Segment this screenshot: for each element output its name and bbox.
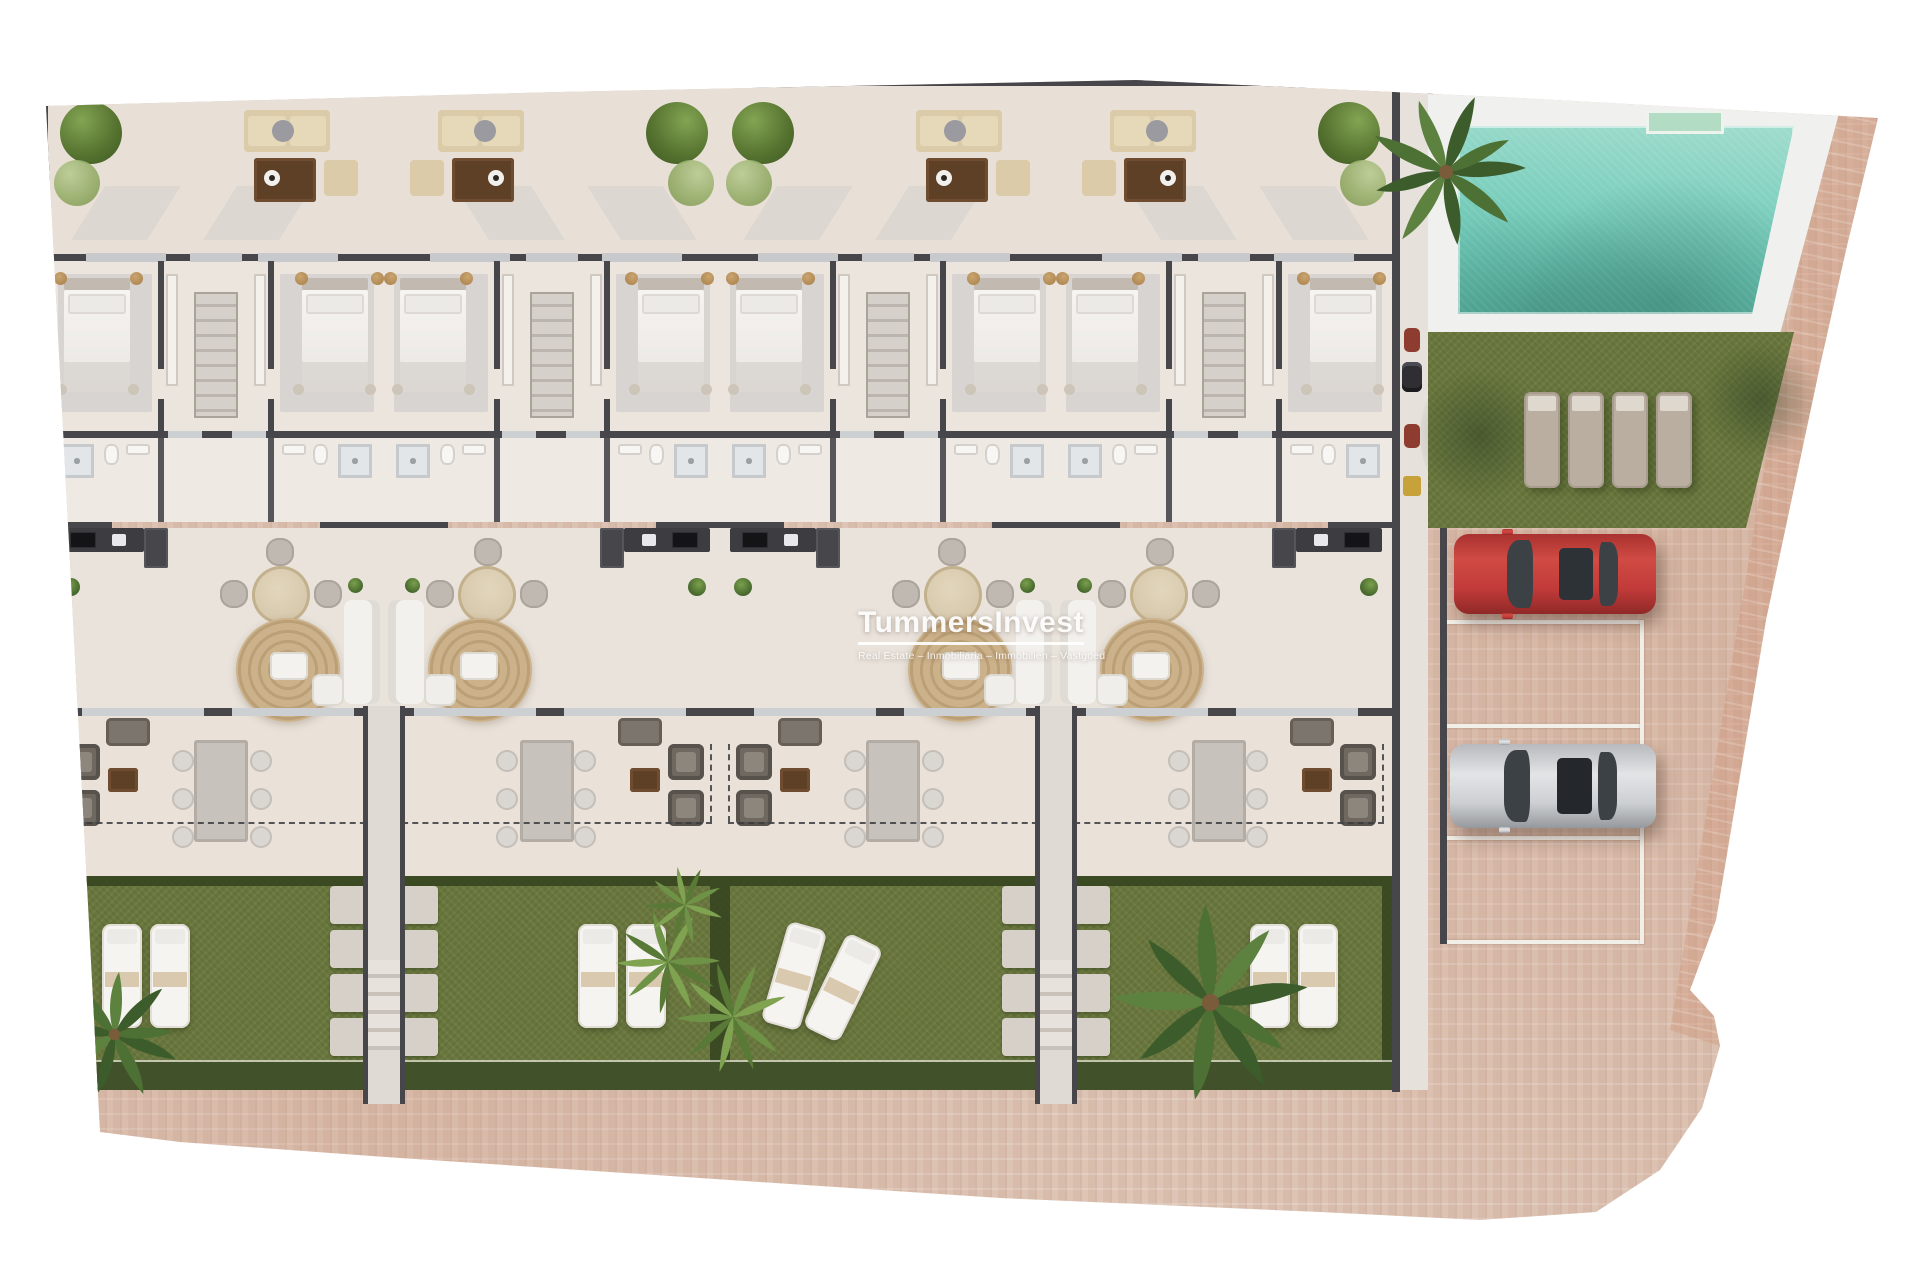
shower [1068, 444, 1102, 478]
wall [158, 438, 164, 522]
bed-headboard [638, 278, 704, 290]
path-steps [1040, 960, 1072, 1050]
bathroom-sink [126, 444, 150, 455]
window [1198, 253, 1250, 262]
dining-table [1130, 566, 1188, 624]
townhouse-unit-1 [48, 86, 384, 1090]
wall [1056, 522, 1120, 528]
lounge-armchair [668, 744, 704, 780]
sliding-door [1086, 708, 1208, 716]
staircase [194, 292, 238, 418]
dining-chair [474, 538, 502, 566]
red-car [1454, 534, 1656, 614]
fire-bowl [264, 170, 280, 186]
night-lamp [701, 272, 714, 285]
sofa-cushion [442, 116, 478, 146]
wall [1276, 399, 1282, 431]
wall [940, 438, 946, 522]
pouf [464, 384, 475, 395]
terrace-bush-light [668, 160, 714, 206]
entry-path [1035, 706, 1077, 1104]
outdoor-chair [1168, 826, 1190, 848]
toilet [776, 444, 791, 465]
staircase [1202, 292, 1246, 418]
scooter [1402, 362, 1422, 392]
night-lamp [1132, 272, 1145, 285]
parking-line [1447, 940, 1643, 944]
wall [268, 438, 274, 522]
doormat [1404, 424, 1420, 448]
coffee-table [270, 652, 308, 680]
dining-table [252, 566, 310, 624]
shape [1087, 876, 1342, 1132]
chaise [1096, 674, 1128, 706]
dining-chair [892, 580, 920, 608]
windshield [1504, 750, 1531, 822]
floor-plan-stage: TummersInvest Real Estate – Inmobiliaria… [0, 0, 1920, 1280]
sofa-cushion [1114, 116, 1150, 146]
toilet [104, 444, 119, 465]
coffee-table [452, 158, 514, 202]
night-lamp [295, 272, 308, 285]
outdoor-chair [172, 826, 194, 848]
plot-boundary-dashed [56, 744, 58, 822]
bed-pillows [978, 294, 1036, 314]
lounge-chair [618, 718, 662, 746]
pouf [365, 384, 376, 395]
parking-line [1447, 620, 1643, 624]
entry-path [363, 706, 405, 1104]
plot-boundary-dashed [728, 822, 1048, 824]
watermark-subtitle: Real Estate – Inmobiliaria – Immobilien … [858, 650, 1078, 662]
night-lamp [967, 272, 980, 285]
night-lamp [384, 272, 397, 285]
lounge-chair [106, 718, 150, 746]
pool-entry-steps [1646, 110, 1724, 134]
kitchen-sink [784, 534, 798, 546]
building-left-wall [42, 80, 50, 1092]
night-lamp [802, 272, 815, 285]
cooktop [1344, 532, 1370, 548]
outdoor-armchair [1082, 160, 1116, 196]
bed-headboard [64, 278, 130, 290]
sliding-window [602, 253, 682, 262]
pil [1660, 396, 1689, 411]
sliding-door [82, 708, 204, 716]
coffee-table [460, 652, 498, 680]
windshield [1507, 540, 1533, 609]
potted-plant [405, 578, 420, 593]
chaise [424, 674, 456, 706]
night-lamp [1056, 272, 1069, 285]
wall [720, 431, 1056, 438]
bathroom-sink [282, 444, 306, 455]
outdoor-armchair [324, 160, 358, 196]
sliding-door [754, 708, 876, 716]
plot-boundary-dashed [392, 822, 712, 824]
kitchen-sink [642, 534, 656, 546]
wardrobe [926, 274, 938, 386]
door [232, 431, 266, 438]
watermark-title: TummersInvest [858, 606, 1084, 645]
bathroom-floor [1056, 438, 1392, 522]
fire-bowl [488, 170, 504, 186]
sofa-cushion [290, 116, 326, 146]
door [566, 431, 600, 438]
window [190, 253, 242, 262]
outdoor-chair [496, 750, 518, 772]
lounge-armchair [64, 744, 100, 780]
wall [268, 261, 274, 369]
bathroom-floor [720, 438, 1056, 522]
terrace-bush-light [54, 160, 100, 206]
wall [158, 261, 164, 369]
toilet [1112, 444, 1127, 465]
bathroom-sink [1134, 444, 1158, 455]
side-table [108, 768, 138, 792]
toilet [1321, 444, 1336, 465]
outdoor-chair [1168, 750, 1190, 772]
sofa-cushion [962, 116, 998, 146]
sunroof [1559, 548, 1593, 601]
potted-plant [348, 578, 363, 593]
lounge-chair [1290, 718, 1334, 746]
pouf [800, 384, 811, 395]
lounge-chair [778, 718, 822, 746]
toilet [313, 444, 328, 465]
fridge [144, 528, 168, 568]
lawn-lounger [1612, 392, 1648, 488]
night-lamp [726, 272, 739, 285]
coffee-table [1124, 158, 1186, 202]
pouf [128, 384, 139, 395]
wall [830, 399, 836, 431]
dining-chair [426, 580, 454, 608]
night-lamp [54, 272, 67, 285]
lounge-armchair [668, 790, 704, 826]
potted-plant [1077, 578, 1092, 593]
window [862, 253, 914, 262]
fridge [816, 528, 840, 568]
coffee-table [1132, 652, 1170, 680]
sliding-window [758, 253, 838, 262]
wall [494, 399, 500, 431]
outdoor-dining-table [194, 740, 248, 842]
wall [384, 431, 720, 438]
bed-headboard [1072, 278, 1138, 290]
pouf [1136, 384, 1147, 395]
pil [1616, 396, 1645, 411]
pouf [1373, 384, 1384, 395]
chaise [312, 674, 344, 706]
rear-window [1599, 542, 1617, 606]
side-table [1302, 768, 1332, 792]
potted-plant [734, 578, 752, 596]
watermark: TummersInvest Real Estate – Inmobiliaria… [858, 606, 1078, 662]
kitchen-sink [112, 534, 126, 546]
sliding-door [232, 708, 354, 716]
outdoor-chair [1246, 788, 1268, 810]
wall [320, 522, 384, 528]
wall [830, 261, 836, 369]
bathroom-sink [618, 444, 642, 455]
lounge-armchair [64, 790, 100, 826]
outdoor-chair [574, 788, 596, 810]
fire-bowl [1160, 170, 1176, 186]
sofa-throw [272, 120, 294, 142]
bed-pillows [68, 294, 126, 314]
shower [396, 444, 430, 478]
wardrobe [1262, 274, 1274, 386]
outdoor-chair [1246, 826, 1268, 848]
bathroom-floor [384, 438, 720, 522]
wall [1276, 261, 1282, 369]
sliding-window [86, 253, 166, 262]
parking-wall [1440, 528, 1447, 944]
toilet [440, 444, 455, 465]
wall [268, 399, 274, 431]
wall [384, 522, 448, 528]
potted-plant [1360, 578, 1378, 596]
door [1174, 431, 1208, 438]
pouf [1301, 384, 1312, 395]
bed-headboard [736, 278, 802, 290]
potted-plant [688, 578, 706, 596]
palm-tree-pool [1346, 72, 1546, 272]
outdoor-chair [172, 788, 194, 810]
shower [732, 444, 766, 478]
toilet [985, 444, 1000, 465]
bathroom-sink [462, 444, 486, 455]
door [904, 431, 938, 438]
bathroom-sink [798, 444, 822, 455]
sofa [344, 600, 380, 704]
townhouse-unit-3 [720, 86, 1056, 1090]
sunroof [1557, 758, 1592, 813]
bed-pillows [642, 294, 700, 314]
outdoor-chair [844, 750, 866, 772]
wardrobe [502, 274, 514, 386]
side-mirror [1499, 739, 1509, 745]
shower [674, 444, 708, 478]
wall [158, 399, 164, 431]
outdoor-chair [250, 826, 272, 848]
terrace-bush [646, 102, 708, 164]
pil [107, 929, 137, 944]
side-table [630, 768, 660, 792]
pouf [629, 384, 640, 395]
wall [1276, 438, 1282, 522]
dining-chair [1098, 580, 1126, 608]
night-lamp [1373, 272, 1386, 285]
bed-headboard [400, 278, 466, 290]
wall [494, 261, 500, 369]
outdoor-chair [574, 750, 596, 772]
dining-chair [266, 538, 294, 566]
pouf [56, 384, 67, 395]
silver-car [1450, 744, 1656, 828]
sliding-door [904, 708, 1026, 716]
sofa-throw [474, 120, 496, 142]
bed-headboard [1310, 278, 1376, 290]
lounge-armchair [1340, 790, 1376, 826]
outdoor-chair [496, 788, 518, 810]
bed-pillows [1314, 294, 1372, 314]
dining-chair [1192, 580, 1220, 608]
bed-pillows [404, 294, 462, 314]
band [823, 976, 860, 1005]
wall [604, 438, 610, 522]
outdoor-armchair [996, 160, 1030, 196]
pil [1528, 396, 1557, 411]
pouf [1064, 384, 1075, 395]
sliding-window [1274, 253, 1354, 262]
lounge-armchair [736, 790, 772, 826]
plot-boundary-dashed [56, 822, 376, 824]
night-lamp [1297, 272, 1310, 285]
sliding-door [564, 708, 686, 716]
path-steps [368, 960, 400, 1050]
bed-pillows [306, 294, 364, 314]
plot-boundary-dashed [728, 744, 730, 822]
outdoor-chair [1168, 788, 1190, 810]
outdoor-chair [574, 826, 596, 848]
plot-boundary-dashed [710, 744, 712, 822]
palm-tree-left [32, 952, 197, 1117]
wall [830, 438, 836, 522]
plot-boundary-dashed [1382, 744, 1384, 822]
outdoor-chair [844, 826, 866, 848]
bathroom-sink [1290, 444, 1314, 455]
dining-table [458, 566, 516, 624]
kitchen-sink [1314, 534, 1328, 546]
fridge [1272, 528, 1296, 568]
cooktop [70, 532, 96, 548]
sofa-throw [944, 120, 966, 142]
wardrobe [1174, 274, 1186, 386]
night-lamp [460, 272, 473, 285]
lawn-lounger [1524, 392, 1560, 488]
lounge-armchair [1340, 744, 1376, 780]
doormat [1404, 328, 1420, 352]
outdoor-chair [922, 788, 944, 810]
wall [1166, 399, 1172, 431]
wall [1056, 431, 1392, 438]
chaise [984, 674, 1016, 706]
dining-chair [986, 580, 1014, 608]
outdoor-chair [250, 788, 272, 810]
side-mirror [1502, 529, 1512, 535]
outdoor-chair [1246, 750, 1268, 772]
dining-chair [220, 580, 248, 608]
sofa-throw [1146, 120, 1168, 142]
dining-chair [520, 580, 548, 608]
outdoor-chair [844, 788, 866, 810]
lawn-lounger [1568, 392, 1604, 488]
staircase [866, 292, 910, 418]
wardrobe [254, 274, 266, 386]
dining-chair [938, 538, 966, 566]
wall [494, 438, 500, 522]
window [526, 253, 578, 262]
shape [654, 938, 812, 1096]
pil [788, 927, 821, 949]
outdoor-dining-table [520, 740, 574, 842]
wardrobe [590, 274, 602, 386]
night-lamp [1043, 272, 1056, 285]
outdoor-armchair [410, 160, 444, 196]
outdoor-chair [922, 750, 944, 772]
tree-shadow [1700, 340, 1820, 460]
night-lamp [371, 272, 384, 285]
dining-chair [314, 580, 342, 608]
side-table [780, 768, 810, 792]
side-mirror [1499, 827, 1509, 833]
staircase [530, 292, 574, 418]
bathroom-floor [48, 438, 384, 522]
wall [940, 399, 946, 431]
planter-box [1403, 476, 1421, 496]
pouf [965, 384, 976, 395]
wall [940, 261, 946, 369]
palm-tree-large [1088, 880, 1333, 1125]
terrace-bush-light [726, 160, 772, 206]
dining-chair [1146, 538, 1174, 566]
wall [992, 522, 1056, 528]
wall [604, 261, 610, 369]
shower [60, 444, 94, 478]
cooktop [672, 532, 698, 548]
sofa [388, 600, 424, 704]
lounge-armchair [736, 744, 772, 780]
night-lamp [625, 272, 638, 285]
wall [48, 431, 384, 438]
bathroom-sink [954, 444, 978, 455]
side-mirror [1502, 613, 1512, 619]
shower [1010, 444, 1044, 478]
toilet [649, 444, 664, 465]
pouf [293, 384, 304, 395]
rear-window [1598, 752, 1617, 819]
parking-line [1447, 836, 1643, 840]
door [502, 431, 536, 438]
fridge [600, 528, 624, 568]
outdoor-chair [922, 826, 944, 848]
pouf [1037, 384, 1048, 395]
wall [604, 399, 610, 431]
outdoor-dining-table [866, 740, 920, 842]
potted-plant [1020, 578, 1035, 593]
plot-boundary-dashed [1064, 822, 1384, 824]
door [168, 431, 202, 438]
terrace-bush [60, 102, 122, 164]
outdoor-chair [172, 750, 194, 772]
pil [1572, 396, 1601, 411]
shower [1346, 444, 1380, 478]
shower [338, 444, 372, 478]
door [840, 431, 874, 438]
wall [1166, 261, 1172, 369]
bed-headboard [974, 278, 1040, 290]
fire-bowl [936, 170, 952, 186]
night-lamp [130, 272, 143, 285]
bed-pillows [740, 294, 798, 314]
garden-shrub [640, 860, 730, 950]
outdoor-chair [496, 826, 518, 848]
sliding-door [414, 708, 536, 716]
outdoor-chair [250, 750, 272, 772]
door [1238, 431, 1272, 438]
